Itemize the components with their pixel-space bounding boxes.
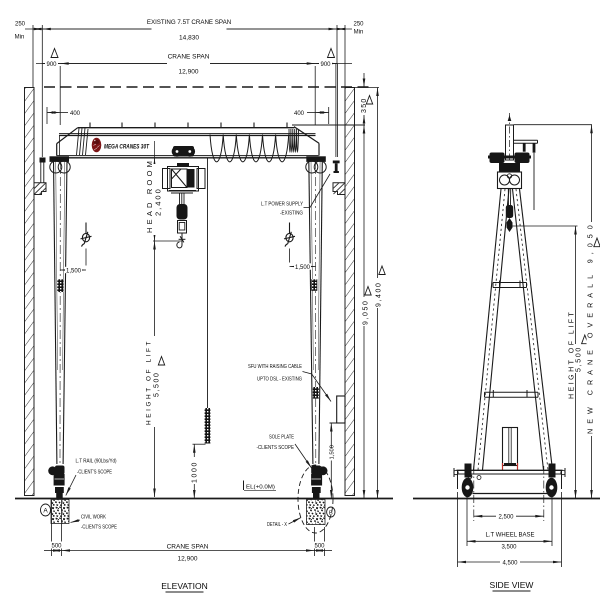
svg-text:2,400: 2,400 xyxy=(154,187,163,216)
svg-text:1,500: 1,500 xyxy=(330,445,336,460)
svg-text:SOLE PLATE: SOLE PLATE xyxy=(269,435,294,441)
svg-text:4,500: 4,500 xyxy=(502,561,518,567)
svg-text:9,050: 9,050 xyxy=(363,299,370,325)
svg-text:900: 900 xyxy=(320,62,331,68)
svg-text:UPTO DSL - EXISTING: UPTO DSL - EXISTING xyxy=(257,377,302,383)
svg-text:1000: 1000 xyxy=(192,461,199,483)
svg-text:500: 500 xyxy=(51,544,62,550)
svg-text:1,500: 1,500 xyxy=(66,268,82,274)
svg-text:CRANE SPAN: CRANE SPAN xyxy=(167,544,209,551)
svg-text:3,500: 3,500 xyxy=(501,545,517,551)
svg-text:2,500: 2,500 xyxy=(498,515,514,521)
svg-text:12,900: 12,900 xyxy=(179,69,199,76)
svg-text:-EXISTING: -EXISTING xyxy=(280,211,303,217)
svg-text:L.T POWER SUPPLY: L.T POWER SUPPLY xyxy=(261,202,303,208)
svg-text:MEGA CRANES 30T: MEGA CRANES 30T xyxy=(104,144,150,151)
svg-text:14,830: 14,830 xyxy=(179,35,199,42)
svg-text:HEIGHT OF LIFT: HEIGHT OF LIFT xyxy=(146,339,153,425)
svg-text:400: 400 xyxy=(70,111,81,117)
svg-text:EL(+0.0M): EL(+0.0M) xyxy=(246,485,275,491)
svg-text:250: 250 xyxy=(353,22,364,28)
svg-text:CRANE SPAN: CRANE SPAN xyxy=(168,54,210,61)
svg-text:12,900: 12,900 xyxy=(178,556,198,563)
svg-text:-CLIENT'S SCOPE: -CLIENT'S SCOPE xyxy=(81,525,117,531)
svg-text:NEW CRANE OVERALL 9,050: NEW CRANE OVERALL 9,050 xyxy=(585,220,594,434)
svg-text:5,500: 5,500 xyxy=(575,346,582,372)
svg-text:CIVIL WORK: CIVIL WORK xyxy=(81,515,106,521)
svg-text:EXISTING 7.5T CRANE SPAN: EXISTING 7.5T CRANE SPAN xyxy=(147,19,231,26)
svg-text:400: 400 xyxy=(294,111,305,117)
svg-text:500: 500 xyxy=(314,544,325,550)
svg-text:DETAIL - X: DETAIL - X xyxy=(267,522,287,528)
svg-text:Min: Min xyxy=(354,30,364,36)
svg-text:L.T RAIL (90Lbs/Yd): L.T RAIL (90Lbs/Yd) xyxy=(76,459,117,465)
svg-text:SIDE VIEW: SIDE VIEW xyxy=(490,580,534,590)
svg-text:L.T WHEEL BASE: L.T WHEEL BASE xyxy=(485,533,534,539)
svg-text:350: 350 xyxy=(361,97,368,113)
svg-text:250: 250 xyxy=(15,22,26,28)
svg-text:900: 900 xyxy=(46,62,57,68)
svg-text:ELEVATION: ELEVATION xyxy=(161,581,207,591)
svg-text:-CLIENT'S SCOPE: -CLIENT'S SCOPE xyxy=(77,470,112,476)
svg-text:5,500: 5,500 xyxy=(154,371,161,397)
svg-text:9,400: 9,400 xyxy=(376,281,383,307)
svg-text:1,500: 1,500 xyxy=(295,265,311,271)
svg-text:-CLIENTS SCOPE: -CLIENTS SCOPE xyxy=(257,445,295,451)
svg-text:A: A xyxy=(43,508,48,515)
svg-text:SFU WITH RAISING CABLE: SFU WITH RAISING CABLE xyxy=(248,364,302,370)
svg-text:Min: Min xyxy=(15,35,25,41)
